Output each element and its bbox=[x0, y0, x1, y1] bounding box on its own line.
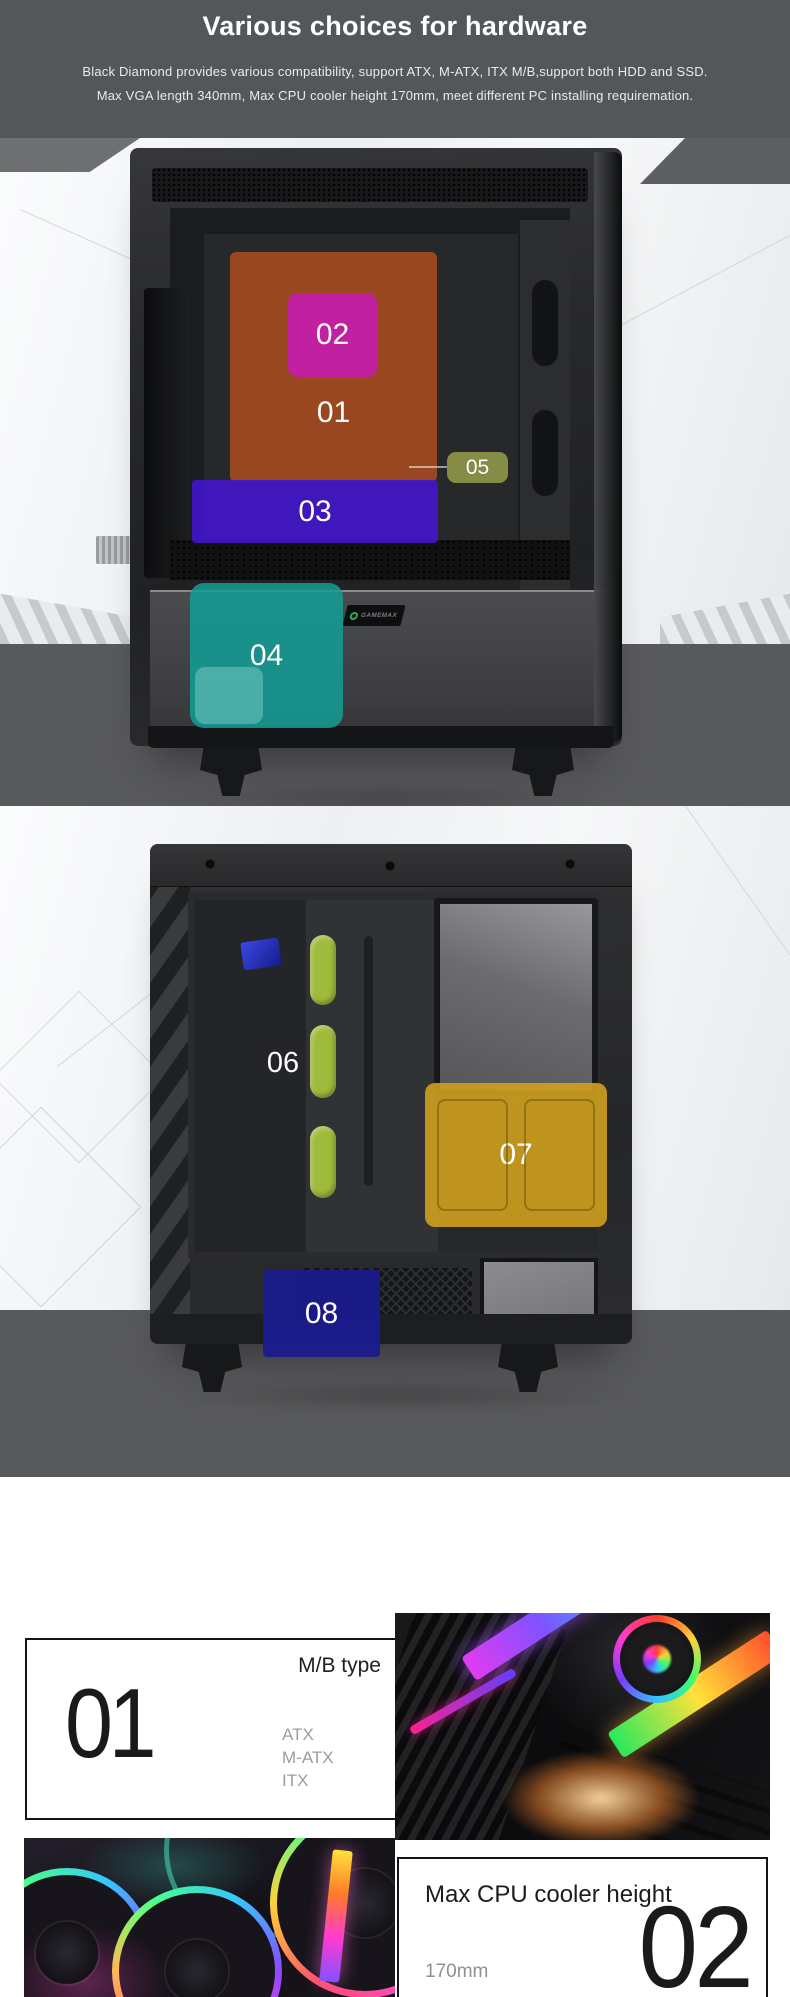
rgb-fans-photo bbox=[24, 1838, 395, 1997]
case-reflection bbox=[170, 1382, 630, 1408]
callout-06-grommet-highlight bbox=[310, 1126, 336, 1198]
callout-03-vga-area: 03 bbox=[192, 480, 438, 543]
bottom-rail bbox=[148, 726, 614, 748]
cable-cutout bbox=[532, 410, 558, 496]
mb-option-atx: ATX bbox=[282, 1724, 334, 1747]
callout-05-slot-area: 05 bbox=[447, 452, 508, 483]
drive-tray-outline bbox=[437, 1099, 508, 1211]
callout-05-label: 05 bbox=[466, 456, 489, 480]
cable-cutout bbox=[532, 280, 558, 366]
rear-inner-wall bbox=[520, 220, 570, 646]
callout-06-grommet-highlight bbox=[310, 935, 336, 1005]
callout-04-psu-area: 04 bbox=[190, 583, 343, 728]
fan-hub-accent bbox=[240, 937, 282, 970]
front-view-photo: GAMEMAX 01 02 03 05 04 bbox=[0, 138, 790, 806]
top-mesh-filter bbox=[152, 168, 588, 202]
subtitle-line-1: Black Diamond provides various compatibi… bbox=[0, 64, 790, 79]
ceiling-wedge bbox=[0, 138, 140, 172]
drive-tray-outline bbox=[524, 1099, 595, 1211]
gamemax-logo-icon bbox=[349, 612, 359, 620]
callout-02-cpu-cooler-area: 02 bbox=[288, 293, 377, 377]
callout-02-label: 02 bbox=[316, 318, 349, 352]
logo-glow bbox=[503, 1751, 698, 1840]
page-title: Various choices for hardware bbox=[0, 0, 790, 42]
section-header: Various choices for hardware Black Diamo… bbox=[0, 0, 790, 138]
card-cooler-number: 02 bbox=[639, 1889, 750, 1997]
fan-hub bbox=[36, 1922, 97, 1983]
rear-view-photo: 06 07 08 bbox=[0, 806, 790, 1477]
bottom-rail bbox=[150, 1314, 632, 1344]
product-feature-page: Various choices for hardware Black Diamo… bbox=[0, 0, 790, 1997]
callout-08-label: 08 bbox=[305, 1297, 338, 1331]
callout-06-grommet-highlight bbox=[310, 1025, 336, 1098]
cpu-cutout-slot bbox=[364, 936, 373, 1186]
card-cooler-title: Max CPU cooler height bbox=[425, 1881, 672, 1909]
gamemax-logo-text: GAMEMAX bbox=[360, 612, 398, 618]
callout-01-label: 01 bbox=[317, 396, 350, 430]
side-window-cutout bbox=[434, 898, 598, 1096]
callout-06-label: 06 bbox=[253, 1044, 313, 1082]
tempered-glass-edge bbox=[594, 152, 622, 742]
card-cooler-value: 170mm bbox=[425, 1961, 488, 1983]
ceiling-wedge bbox=[640, 138, 790, 184]
card-mb-type-number: 01 bbox=[65, 1674, 152, 1772]
callout-04-highlight bbox=[195, 667, 263, 724]
callout-03-label: 03 bbox=[298, 495, 331, 529]
gamemax-logo-plate: GAMEMAX bbox=[342, 605, 405, 626]
aio-pump-core bbox=[643, 1645, 671, 1673]
card-cpu-cooler-height: Max CPU cooler height 170mm 02 bbox=[397, 1857, 768, 1997]
wall-seam bbox=[684, 806, 790, 1050]
callout-05-connector-line bbox=[409, 466, 447, 468]
motherboard-rgb-photo bbox=[395, 1613, 770, 1840]
card-mb-type: M/B type 01 ATX M-ATX ITX bbox=[25, 1638, 397, 1820]
callout-08-psu-bay-area: 08 bbox=[263, 1270, 380, 1357]
subtitle-line-2: Max VGA length 340mm, Max CPU cooler hei… bbox=[0, 88, 790, 103]
wall-facet bbox=[0, 1107, 141, 1308]
floor-stripes bbox=[0, 574, 135, 644]
card-mb-type-options: ATX M-ATX ITX bbox=[282, 1724, 334, 1793]
mb-option-matx: M-ATX bbox=[282, 1747, 334, 1770]
mb-option-itx: ITX bbox=[282, 1770, 334, 1793]
fan-hub bbox=[166, 1940, 227, 1997]
floor-stripes bbox=[660, 574, 790, 644]
shroud-top-mesh bbox=[170, 540, 570, 580]
top-frame bbox=[150, 844, 632, 887]
front-fan bbox=[144, 288, 190, 578]
callout-07-drive-tray-area: 07 bbox=[425, 1083, 607, 1227]
card-mb-type-title: M/B type bbox=[298, 1654, 381, 1678]
front-panel-facets bbox=[150, 844, 190, 1344]
